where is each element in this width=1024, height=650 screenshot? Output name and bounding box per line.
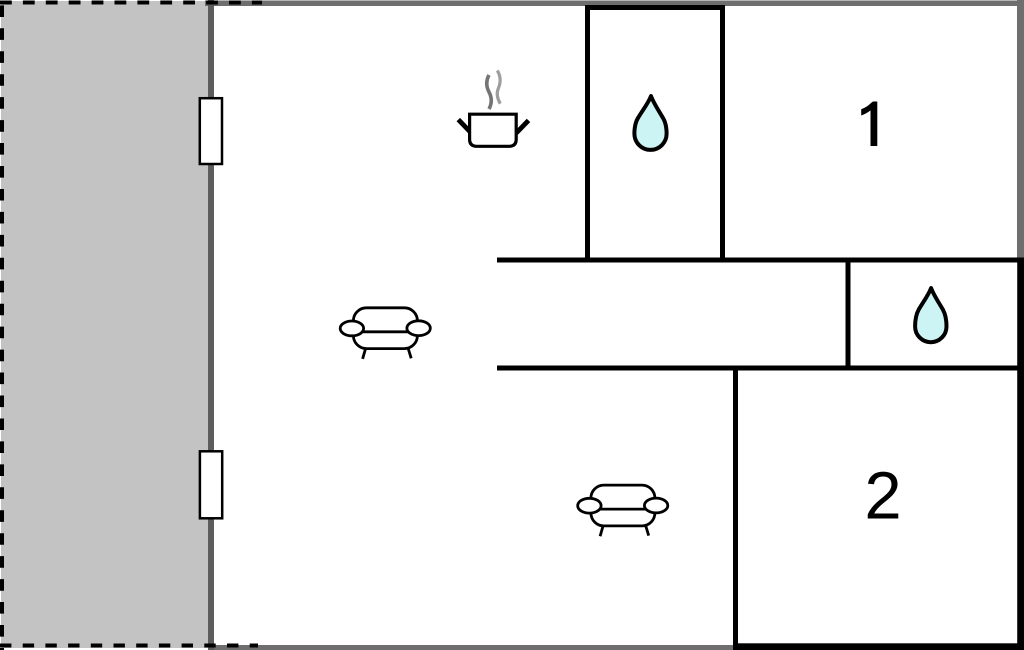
svg-text:2: 2	[864, 459, 901, 534]
